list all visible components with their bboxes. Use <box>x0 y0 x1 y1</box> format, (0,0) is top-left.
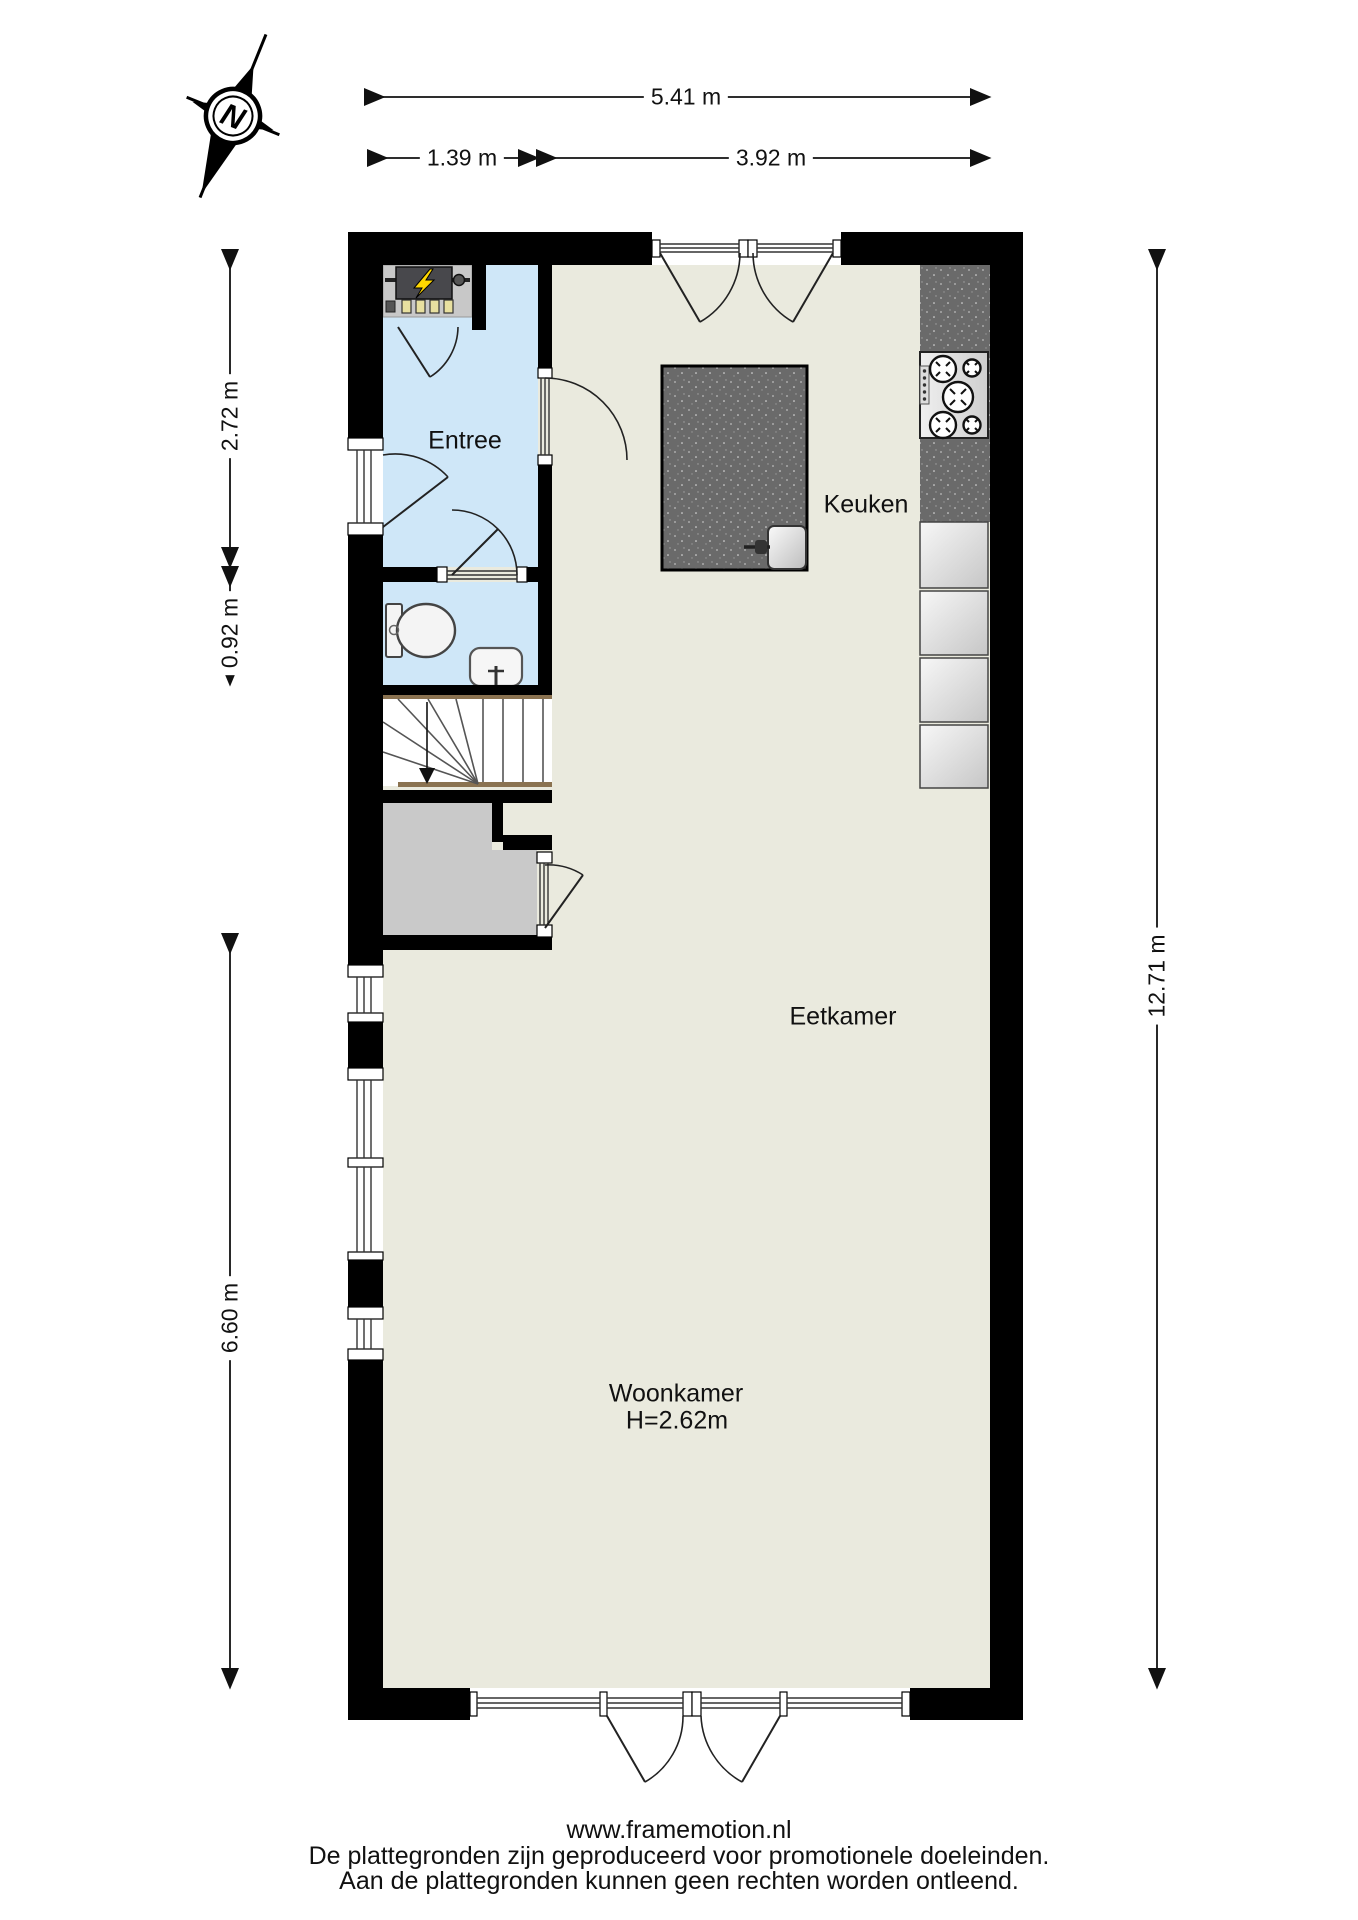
compass-north-icon: N <box>138 16 328 216</box>
staircase <box>383 695 552 787</box>
kitchen-appliances <box>920 522 988 788</box>
room-label-entree: Entree <box>428 427 502 456</box>
footer: www.framemotion.nl De plattegronden zijn… <box>0 1818 1358 1895</box>
room-label-keuken: Keuken <box>824 491 909 520</box>
toilet-icon <box>386 604 455 657</box>
dim-total-depth: 12.71 m <box>1144 927 1171 1024</box>
footer-website: www.framemotion.nl <box>0 1818 1358 1844</box>
room-label-eetkamer: Eetkamer <box>790 1003 897 1032</box>
dim-width-total: 5.41 m <box>644 84 728 111</box>
dim-width-kitchen: 3.92 m <box>729 145 813 172</box>
floorplan-page: N 5.41 m 1.39 m 3.92 m 2.72 m 0.92 m 6.6… <box>0 0 1358 1920</box>
toilet-sink-icon <box>470 648 522 686</box>
dim-toilet-depth: 0.92 m <box>217 591 244 675</box>
kitchen-counter <box>920 265 990 788</box>
stove-icon <box>920 352 988 438</box>
dim-width-entree: 1.39 m <box>420 145 504 172</box>
room-label-woonkamer: Woonkamer <box>609 1380 743 1409</box>
dim-livingroom-depth: 6.60 m <box>217 1276 244 1360</box>
meter-cupboard-icon <box>383 265 472 317</box>
kitchen-island <box>662 366 807 570</box>
room-label-woonkamer-height: H=2.62m <box>626 1407 728 1436</box>
dim-entree-depth: 2.72 m <box>217 374 244 458</box>
footer-disclaimer-line1: De plattegronden zijn geproduceerd voor … <box>0 1844 1358 1870</box>
footer-disclaimer-line2: Aan de plattegronden kunnen geen rechten… <box>0 1869 1358 1895</box>
